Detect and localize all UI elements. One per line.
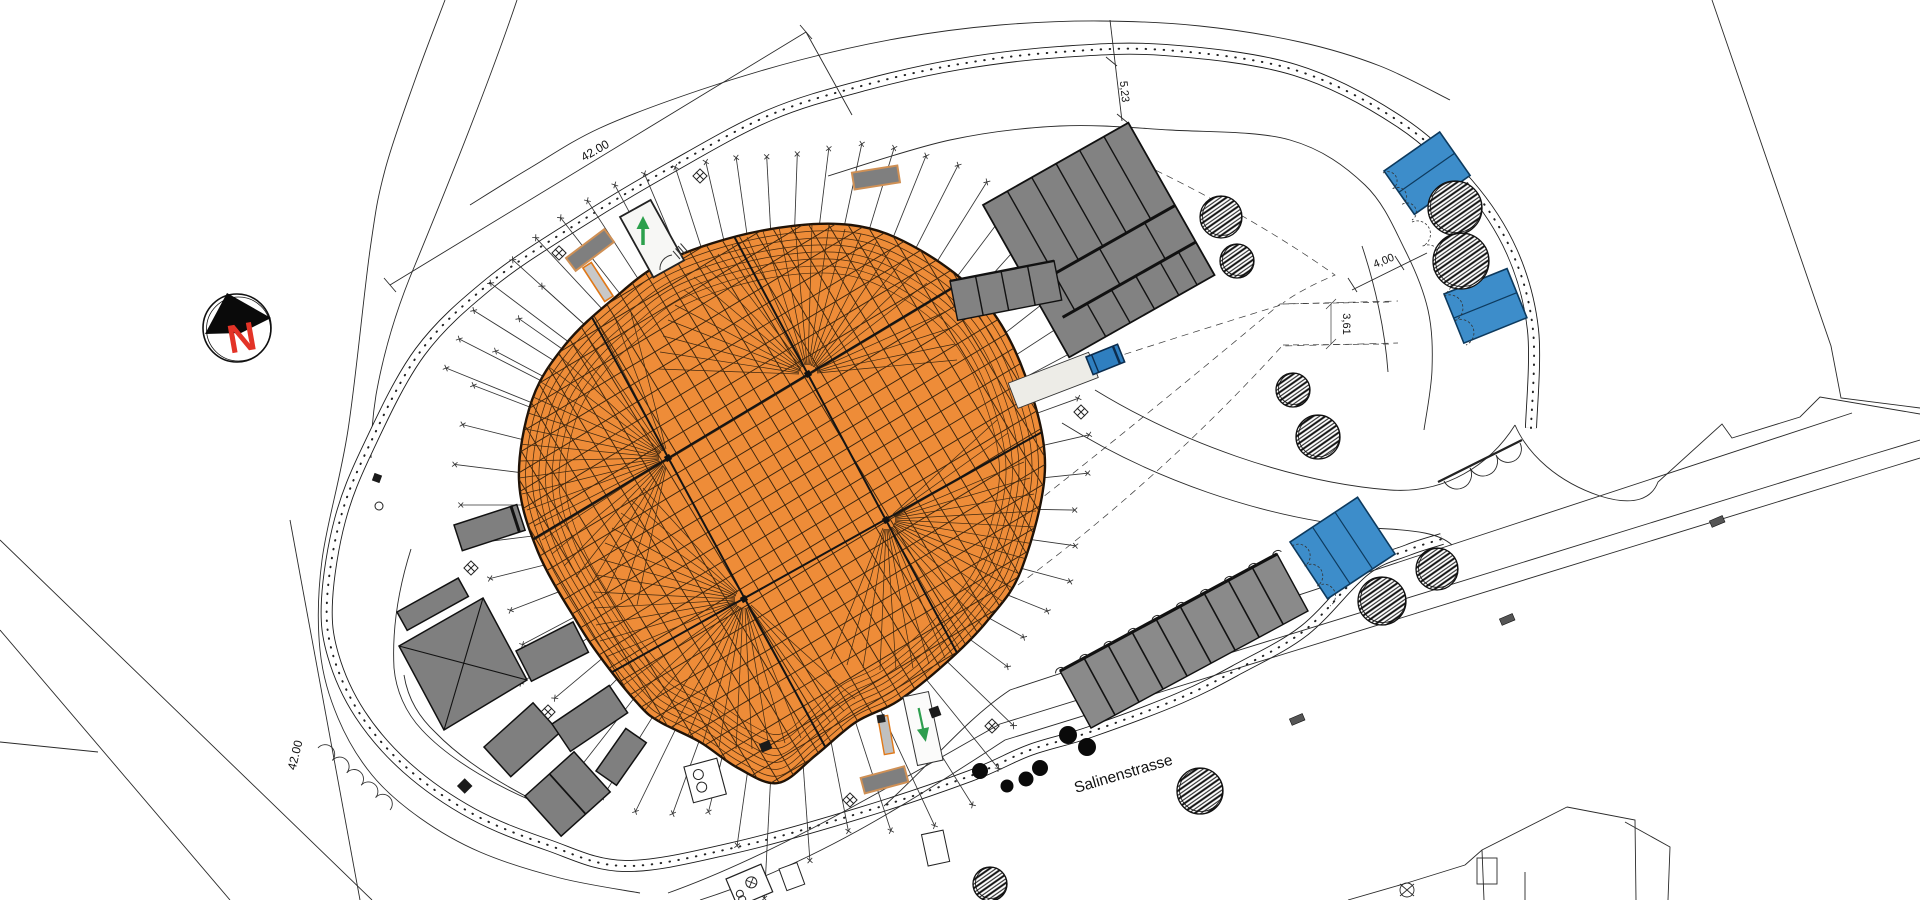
svg-text:3,61: 3,61 bbox=[1340, 313, 1352, 334]
svg-text:5,23: 5,23 bbox=[1117, 80, 1131, 103]
